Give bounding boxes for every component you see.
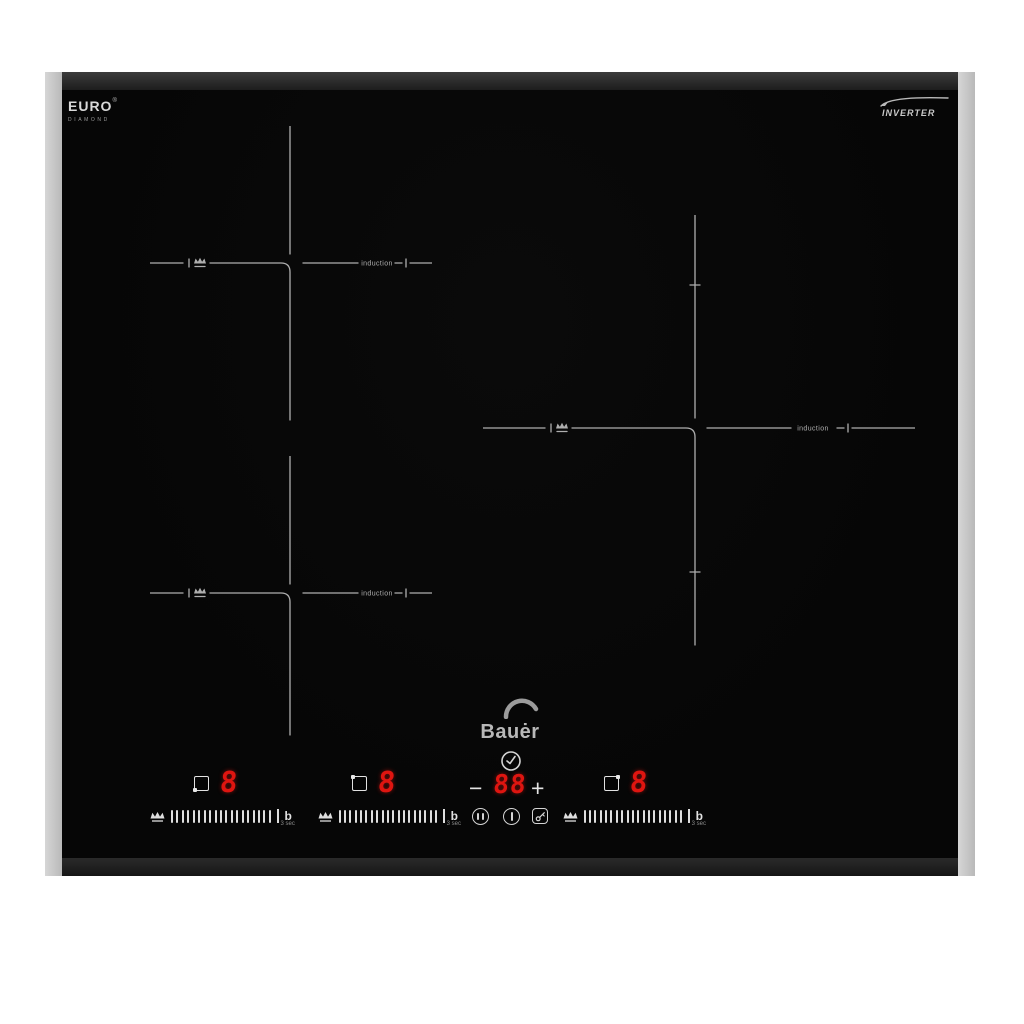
key-icon bbox=[535, 811, 546, 822]
boost-note: 3 sec bbox=[692, 821, 706, 827]
boost-note: 3 sec bbox=[281, 821, 295, 827]
pause-icon bbox=[477, 813, 479, 820]
cooking-zone-front-left: induction bbox=[150, 456, 432, 737]
timer-plus-button[interactable]: + bbox=[531, 777, 544, 800]
boost-crown-icon bbox=[563, 811, 578, 822]
induction-label: induction bbox=[361, 591, 393, 598]
slider-end-bar bbox=[688, 809, 689, 823]
cooktop-bevel-bottom bbox=[62, 858, 958, 876]
power-slider-front-left[interactable]: b 3 sec bbox=[150, 807, 298, 825]
euro-logo-subtext: DIAMOND bbox=[68, 117, 117, 123]
slider-ticks[interactable] bbox=[584, 809, 682, 823]
power-button[interactable] bbox=[503, 808, 520, 825]
timer-minus-button[interactable]: − bbox=[469, 777, 482, 800]
induction-label: induction bbox=[361, 261, 393, 268]
timer-clock-icon[interactable] bbox=[500, 750, 522, 772]
power-icon bbox=[511, 812, 513, 821]
cooking-zone-rear-left: induction bbox=[150, 126, 432, 422]
power-level-display: 8 bbox=[377, 768, 397, 797]
zone-select-display-rear-left[interactable]: 8 bbox=[352, 768, 395, 800]
zone-indicator-rear-left-icon bbox=[352, 776, 367, 791]
power-slider-right[interactable]: b 3 sec bbox=[563, 807, 703, 825]
zone-indicator-right-icon bbox=[604, 776, 619, 791]
registered-mark: ® bbox=[112, 98, 116, 104]
pan-detect-crown-icon bbox=[556, 423, 568, 429]
cooking-zone-right: induction bbox=[483, 215, 915, 647]
zone-select-display-front-left[interactable]: 8 bbox=[194, 768, 237, 800]
pan-detect-crown-icon bbox=[194, 258, 206, 264]
zone-select-display-right[interactable]: 8 bbox=[604, 768, 647, 800]
child-lock-button[interactable] bbox=[532, 808, 548, 824]
power-level-display: 8 bbox=[219, 768, 239, 797]
zone-indicator-front-left-icon bbox=[194, 776, 209, 791]
pause-button[interactable] bbox=[472, 808, 489, 825]
slider-ticks[interactable] bbox=[171, 809, 271, 823]
power-slider-rear-left[interactable]: b 3 sec bbox=[318, 807, 458, 825]
euro-logo-text: EURO bbox=[68, 98, 112, 114]
boost-crown-icon bbox=[318, 811, 333, 822]
cooktop-frame-right bbox=[958, 72, 975, 876]
euro-diamond-logo: EURO® DIAMOND bbox=[68, 98, 117, 123]
bauer-logo: Bauėr bbox=[470, 697, 550, 744]
induction-label: induction bbox=[797, 426, 829, 433]
cooktop-frame-left bbox=[45, 72, 62, 876]
timer-display: 88 bbox=[487, 772, 533, 798]
slider-ticks[interactable] bbox=[339, 809, 437, 823]
bauer-arc-icon bbox=[502, 697, 540, 719]
boost-crown-icon bbox=[150, 811, 165, 822]
pan-detect-crown-icon bbox=[194, 588, 206, 594]
cooktop-bevel-top bbox=[62, 72, 958, 90]
inverter-badge: INVERTER bbox=[876, 94, 956, 118]
slider-end-bar bbox=[277, 809, 279, 823]
product-image: EURO® DIAMOND INVERTER Bauėr induction bbox=[0, 0, 1024, 1024]
slider-end-bar bbox=[443, 809, 444, 823]
boost-note: 3 sec bbox=[447, 821, 461, 827]
power-level-display: 8 bbox=[629, 768, 649, 797]
bauer-logo-text: Bauėr bbox=[470, 721, 550, 744]
